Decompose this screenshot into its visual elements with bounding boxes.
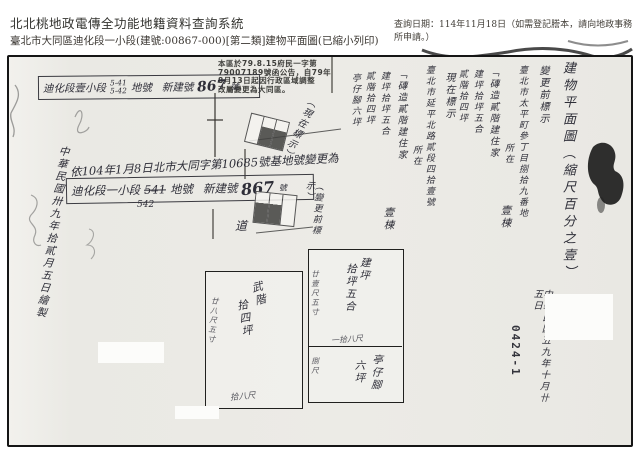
form-previous-address: 臺北市太平町參丁目捌拾九番地 [517,65,526,219]
form-current-heading: 現在標示 [443,72,453,120]
form-current-located: 所在 [411,145,420,167]
ink-blob [588,143,624,205]
old-lot-mid: 地號 [131,79,152,94]
seal-stamp [252,191,297,227]
form-current-address: 臺北市延平北路貳段四拾壹號 [424,65,433,208]
old-lot-label-box: 迪化段壹小段 5-41 5-42 地號 新建號 867 號 [38,74,260,100]
floor2-bottom-dimension: 拾八尺 [230,389,256,403]
new-no-label: 新建號 [203,180,238,197]
form-previous-area-main: 建坪拾坪五合 [472,69,481,135]
new-lot-number: 541 [144,182,166,196]
main-area-label-1: 建坪 [358,257,370,283]
form-previous-area-floor2: 貳階拾四坪 [457,69,466,124]
form-previous-structure: 「磚造貳階建住家 [488,67,498,159]
scanned-floorplan-document: 本區於79.8.15府民一字第 79007189號函公告，自79年 8月13日起… [7,55,633,447]
floorplan-arcade-divider [308,346,402,347]
form-current-area-arcade: 亭仔腳六坪 [350,73,359,128]
redaction-box [98,342,164,363]
arcade-area-label: 六坪 [354,360,365,385]
old-lot-2: 5-42 [110,87,127,95]
form-current-structure: 「磚造貳階建住家 [396,69,406,161]
old-new-building-no: 867 [197,77,227,95]
old-new-no-label: 新建號 [162,79,194,94]
form-previous-located: 所在 [503,143,512,165]
old-lot-prefix: 迪化段壹小段 [43,80,106,96]
plan-title-column: 建物平面圖（縮尺百分之壹） [561,61,574,306]
query-result-page: 北北桃地政電傳全功能地籍資料查詢系統 查詢日期：114年11月18日（如需登記謄… [0,0,640,453]
form-previous-heading: 變更前標示 [537,65,547,125]
new-no-suffix: 號 [279,182,287,193]
arcade-label: 亭仔腳 [370,354,382,392]
arcade-side-dimension: 捌尺 [311,357,319,376]
main-side-dimension: 廿壹尺五寸 [311,270,319,318]
form-current-count: 壹棟 [383,207,394,232]
redaction-box [545,294,613,340]
road-label: 道 [235,217,247,234]
new-lot-prefix: 迪化段一小段 [71,182,140,199]
document-subtitle: 臺北市大同區迪化段一小段(建號:00867-000)[第二類]建物平面圖(已縮小… [10,33,379,48]
divider-dimension: 一拾八尺 [331,333,364,346]
form-current-area-main: 建坪拾坪五合 [379,71,388,137]
main-area-label-2: 拾坪五合 [344,263,356,313]
new-lot-number-below: 542 [137,200,154,210]
system-title: 北北桃地政電傳全功能地籍資料查詢系統 [10,13,244,32]
old-lot-numbers: 5-41 5-42 [110,79,127,95]
doc-number: 0424-1 [510,325,521,385]
new-lot-mid: 地號 [170,181,193,197]
form-previous-count: 壹棟 [500,205,511,230]
form-current-area-floor2: 貳階拾四坪 [364,71,373,126]
old-no-suffix: 號 [231,81,239,92]
redaction-box [175,406,219,419]
